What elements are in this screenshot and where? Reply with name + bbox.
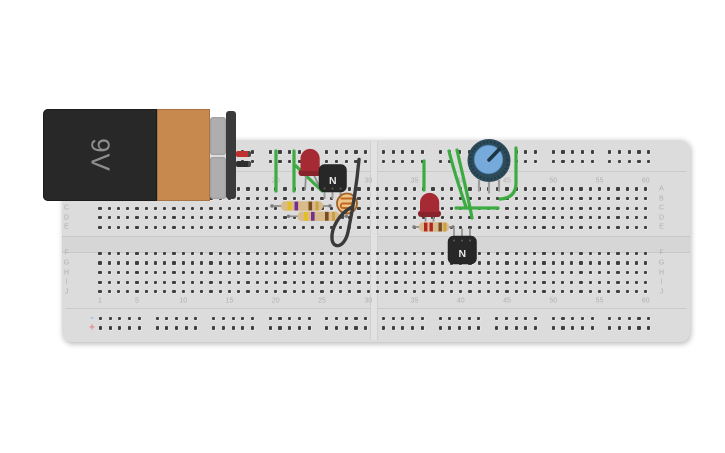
circuit-canvas: 1155101015152020252530303535404045455050… bbox=[0, 0, 725, 453]
band-violet bbox=[295, 202, 299, 211]
band-gold bbox=[316, 202, 319, 211]
pin-mark bbox=[324, 188, 326, 190]
battery-terminal bbox=[210, 117, 226, 155]
pin-mark bbox=[332, 188, 334, 190]
band-red bbox=[424, 223, 427, 232]
lead-tip bbox=[412, 225, 415, 228]
battery-9v[interactable]: 9V bbox=[43, 109, 250, 201]
battery-body: 9V bbox=[43, 109, 157, 201]
band-yellow bbox=[304, 212, 308, 221]
transistor-label: N bbox=[459, 248, 467, 260]
lead-tip bbox=[287, 215, 290, 218]
potentiometer[interactable] bbox=[468, 139, 511, 194]
transistor-label: N bbox=[329, 175, 337, 187]
band-brown bbox=[439, 223, 442, 232]
pin-mark bbox=[461, 240, 463, 242]
npn-transistor-2[interactable]: N bbox=[448, 229, 477, 265]
battery-positive-lead[interactable] bbox=[236, 151, 251, 157]
band-gold bbox=[332, 212, 335, 221]
led-leg bbox=[305, 175, 306, 191]
red-led-1[interactable] bbox=[299, 149, 322, 191]
pin-mark bbox=[453, 240, 455, 242]
resistor-1[interactable] bbox=[270, 201, 331, 210]
band-violet bbox=[311, 212, 315, 221]
pin-mark bbox=[469, 240, 471, 242]
band-red bbox=[430, 223, 433, 232]
band-yellow bbox=[288, 202, 292, 211]
components-layer: N bbox=[0, 0, 725, 453]
pin-mark bbox=[340, 188, 342, 190]
lead-tip bbox=[345, 215, 348, 218]
led-bulb bbox=[420, 193, 439, 212]
red-led-2[interactable] bbox=[418, 193, 441, 222]
battery-label: 9V bbox=[85, 138, 116, 172]
lead-tip bbox=[270, 204, 273, 207]
battery-clip bbox=[226, 111, 236, 199]
band-brown bbox=[325, 212, 329, 221]
lead-tip bbox=[328, 204, 331, 207]
resistor-3[interactable] bbox=[412, 222, 454, 231]
lead-tip bbox=[451, 225, 454, 228]
battery-terminal bbox=[210, 157, 226, 199]
led-bulb bbox=[301, 149, 320, 171]
battery-band bbox=[157, 109, 210, 201]
band-brown bbox=[309, 202, 313, 211]
band-gold bbox=[444, 223, 447, 232]
battery-negative-lead[interactable] bbox=[236, 161, 251, 167]
